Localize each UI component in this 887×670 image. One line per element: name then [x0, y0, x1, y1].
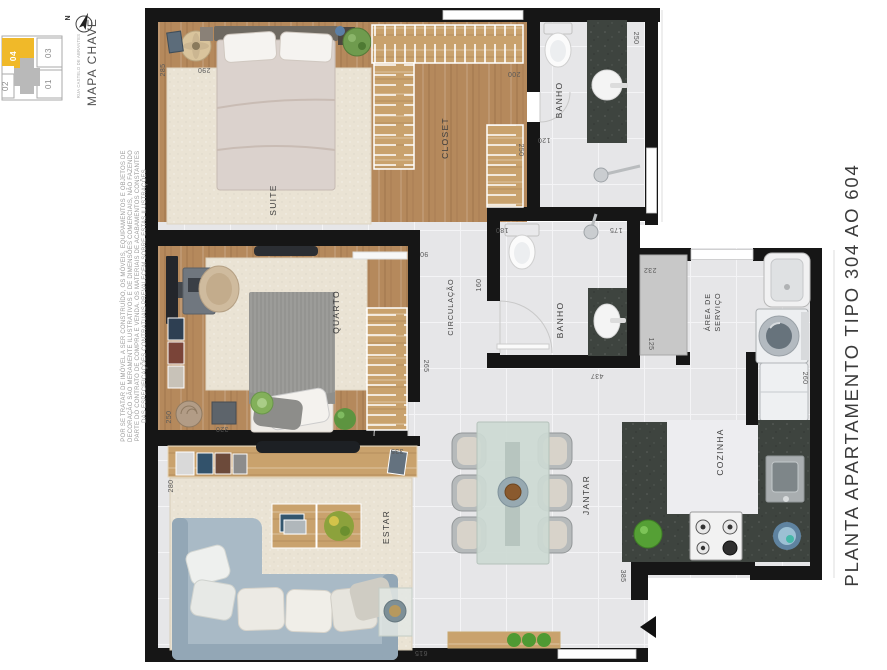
stove-burner-3-cap — [701, 546, 705, 550]
disclaimer-text: POR SE TRATAR DE IMÓVEL A SER CONSTRUÍDO… — [120, 150, 148, 442]
dim-servico-top: 232 — [644, 266, 657, 273]
label-area-servico-2: SERVIÇO — [713, 292, 722, 331]
dim-closet-shelf: 250 — [517, 144, 524, 157]
estar-tv — [256, 441, 360, 453]
key-map-label-03: 03 — [44, 48, 53, 58]
label-banho-social: BANHO — [555, 302, 565, 339]
dim-circulacao-height: 265 — [422, 360, 429, 373]
cozinha-sink-basin — [772, 462, 798, 492]
label-suite: SUITE — [268, 184, 278, 216]
wall-quarto-door-stub — [408, 436, 420, 446]
entry-alcove — [648, 578, 822, 648]
dim-estar-top: 335 — [391, 447, 404, 454]
window-banho-suite — [647, 148, 657, 213]
label-quarto: QUARTO — [331, 290, 341, 334]
closet-shelf-left-ticks — [374, 63, 414, 169]
cozinha-sink-faucet — [783, 496, 789, 502]
dim-quarto-left: 250 — [166, 411, 173, 424]
disclaimer-line-1: POR SE TRATAR DE IMÓVEL A SER CONSTRUÍDO… — [120, 150, 127, 441]
quarto-plant-leaf — [338, 412, 345, 419]
stove-burner-4 — [723, 541, 737, 555]
banho-suite-shower-head-icon — [594, 168, 608, 182]
key-map-label-02: 02 — [1, 81, 10, 91]
exterior-mask-step — [640, 225, 822, 248]
label-jantar: JANTAR — [581, 475, 591, 515]
estar-table-plant-leaf-1 — [329, 516, 339, 526]
suite-vase — [335, 26, 345, 36]
wall-banho-servico — [627, 221, 640, 368]
key-map-core-h — [14, 68, 40, 86]
cozinha-bowl-fruit — [786, 535, 794, 543]
suite-plant — [343, 28, 371, 56]
floor-plan-page: SUITE CLOSET BANHO QUARTO CIRCULAÇÃO BAN… — [0, 0, 887, 670]
estar-side-table-decor-inner — [389, 605, 401, 617]
banho-social-faucet — [610, 318, 626, 323]
cozinha-aisle-floor — [667, 420, 758, 514]
wall-suite-quarto — [158, 230, 408, 246]
quarto-frame-3 — [168, 366, 184, 388]
banho-suite-faucet — [610, 83, 628, 88]
quarto-pouf-inner — [257, 398, 267, 408]
quarto-shelf — [353, 252, 407, 259]
cozinha-bowl-inner — [778, 527, 796, 545]
dim-suite-top: 290 — [198, 66, 211, 73]
dim-servico-left: 125 — [647, 338, 654, 351]
disclaimer-line-4: DAS ESPECIFICAÇÕES CONTRATUAIS PREVALECE… — [141, 169, 148, 423]
banho-social-shower-head-icon — [584, 225, 598, 239]
estar-frame-4 — [233, 454, 247, 474]
estar-sofa-back-bottom — [172, 644, 398, 660]
wall-banho-social-bottom — [487, 355, 640, 368]
disclaimer-line-3: PARTE DO CONTRATO DE COMPRA E VENDA. OS … — [135, 151, 141, 442]
dim-suite-width: 285 — [160, 64, 167, 77]
sideboard-plant-2 — [522, 633, 536, 647]
suite-books — [167, 31, 184, 53]
quarto-basket — [176, 401, 202, 427]
suite-nightstand-left — [200, 27, 213, 41]
cozinha-plant-leaf — [640, 526, 648, 534]
wall-quarto-circulacao — [408, 230, 420, 402]
label-estar: ESTAR — [381, 510, 391, 544]
street-label: RUA CASTELO DE ABRANTES — [76, 34, 81, 98]
stove-burner-2-cap — [728, 525, 733, 530]
quarto-soundbar — [254, 246, 318, 256]
quarto-plant — [334, 408, 356, 430]
cozinha-plant — [634, 520, 662, 548]
estar-pillow-2 — [189, 579, 237, 622]
dim-hall-right: 175 — [610, 226, 623, 233]
dim-cozinha-fridge: 260 — [801, 372, 808, 385]
dim-closet-top: 200 — [508, 70, 521, 77]
wall-cozinha-bottom-b — [750, 566, 822, 580]
suite-pillow-left — [223, 31, 277, 63]
key-map-label-04: 04 — [8, 51, 18, 61]
wall-top-outer — [145, 8, 660, 22]
wall-closet-banho-a — [527, 22, 540, 92]
key-map: N 04 03 02 01 RUA CASTELO DE ABRANTES MA… — [1, 12, 99, 107]
key-map-heading: MAPA CHAVE — [85, 18, 99, 106]
quarto-wardrobe-ticks — [367, 308, 407, 430]
stove-burner-1-cap — [701, 525, 706, 530]
servico-tanque-drain — [784, 284, 790, 290]
dim-banho-suite-right: 250 — [632, 32, 639, 45]
label-banho-suite: BANHO — [554, 82, 564, 119]
closet-shelf-top-ticks — [372, 25, 523, 63]
sideboard-plant-1 — [507, 633, 521, 647]
label-circulacao: CIRCULAÇÃO — [446, 278, 455, 335]
estar-cushion-2 — [285, 589, 332, 633]
key-map-label-01: 01 — [44, 79, 53, 89]
quarto-duvet — [249, 292, 335, 404]
wall-entry-step — [631, 560, 648, 600]
dim-banho-suite-mid: 120 — [538, 136, 551, 143]
servico-washer-panel — [801, 312, 809, 360]
estar-frame-3 — [215, 453, 231, 474]
quarto-frame-2 — [168, 342, 184, 364]
estar-table-plant-leaf-2 — [340, 526, 350, 536]
closet-shelf-right-ticks — [487, 125, 523, 207]
estar-sofa-back-left — [172, 518, 188, 660]
dim-hall-small: 90 — [420, 250, 429, 257]
window-servico — [691, 250, 753, 260]
dim-estar-left: 280 — [168, 480, 175, 493]
dim-banho-social-width: 437 — [591, 372, 604, 379]
quarto-tv — [166, 256, 178, 324]
estar-magazine-top — [284, 520, 306, 534]
banho-social-toilet-tank — [505, 224, 539, 236]
quarto-tv-stand — [178, 282, 183, 298]
label-closet: CLOSET — [440, 117, 450, 159]
estar-frame-2 — [197, 453, 213, 474]
dim-estar-bottom: 615 — [415, 649, 428, 656]
dim-cozinha-bottom: 385 — [619, 570, 626, 583]
window-closet — [443, 11, 523, 20]
jantar-centerpiece-bowl — [505, 484, 521, 500]
north-label: N — [65, 15, 72, 20]
label-cozinha: COZINHA — [715, 428, 725, 475]
suite-pillow-right — [279, 32, 332, 63]
wall-fridge-nook — [746, 352, 758, 425]
dim-hall-banho: 180 — [496, 226, 509, 233]
window-jantar — [558, 650, 636, 659]
banho-suite-toilet-tank — [544, 23, 572, 34]
dim-quarto-bottom: 320 — [216, 425, 229, 432]
estar-table-plant — [324, 511, 354, 541]
banho-suite-toilet-inner — [550, 40, 566, 62]
quarto-frame-1 — [168, 318, 184, 340]
servico-tanque-basin — [771, 259, 803, 301]
banho-social-towel-bar — [497, 344, 549, 349]
sideboard-plant-3 — [537, 633, 551, 647]
label-area-servico-1: ÁREA DE — [703, 293, 712, 331]
quarto-chair-seat — [206, 273, 232, 305]
banho-social-toilet-inner — [514, 242, 530, 264]
wall-cozinha-bottom-a — [631, 560, 755, 575]
room-estar — [168, 441, 417, 660]
quarto-box — [212, 402, 236, 424]
plan-title: PLANTA APARTAMENTO TIPO 304 AO 604 — [841, 163, 862, 586]
estar-frame-1 — [176, 452, 194, 475]
wall-right-outer — [810, 248, 822, 580]
dim-circulacao-width: 160 — [476, 279, 483, 292]
floor-plan-canvas: SUITE CLOSET BANHO QUARTO CIRCULAÇÃO BAN… — [0, 0, 887, 670]
estar-cushion-1 — [237, 587, 284, 631]
wall-hall-banhos — [487, 207, 658, 221]
disclaimer-line-2: DECORAÇÃO SÃO MERAMENTE ILUSTRATIVOS E D… — [127, 150, 134, 442]
wall-closet-banho-b — [527, 122, 540, 207]
